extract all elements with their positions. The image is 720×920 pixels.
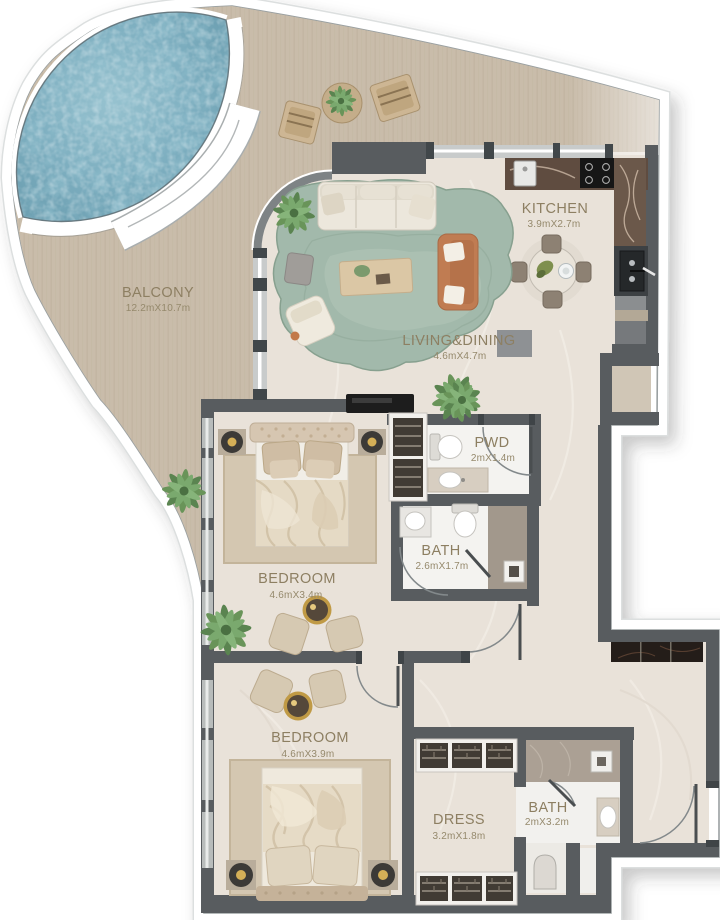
svg-text:12.2mX10.7m: 12.2mX10.7m (126, 303, 190, 314)
svg-text:4.6mX3.9m: 4.6mX3.9m (282, 749, 335, 760)
svg-text:3.2mX1.8m: 3.2mX1.8m (433, 831, 486, 842)
svg-text:BALCONY: BALCONY (122, 285, 194, 301)
svg-text:BEDROOM: BEDROOM (271, 730, 349, 746)
svg-text:PWD: PWD (474, 435, 509, 451)
svg-text:DRESS: DRESS (433, 812, 485, 828)
svg-text:BEDROOM: BEDROOM (258, 571, 336, 587)
svg-text:KITCHEN: KITCHEN (522, 201, 588, 217)
svg-text:BATH: BATH (528, 800, 567, 816)
svg-text:4.6mX4.7m: 4.6mX4.7m (434, 351, 487, 362)
svg-text:2.6mX1.7m: 2.6mX1.7m (416, 561, 469, 572)
svg-text:3.9mX2.7m: 3.9mX2.7m (528, 219, 581, 230)
svg-text:2mX1.4m: 2mX1.4m (471, 453, 515, 464)
svg-text:LIVING&DINING: LIVING&DINING (402, 333, 515, 349)
svg-text:2mX3.2m: 2mX3.2m (525, 817, 569, 828)
svg-text:BATH: BATH (421, 543, 460, 559)
svg-text:4.6mX3.4m: 4.6mX3.4m (270, 590, 323, 601)
